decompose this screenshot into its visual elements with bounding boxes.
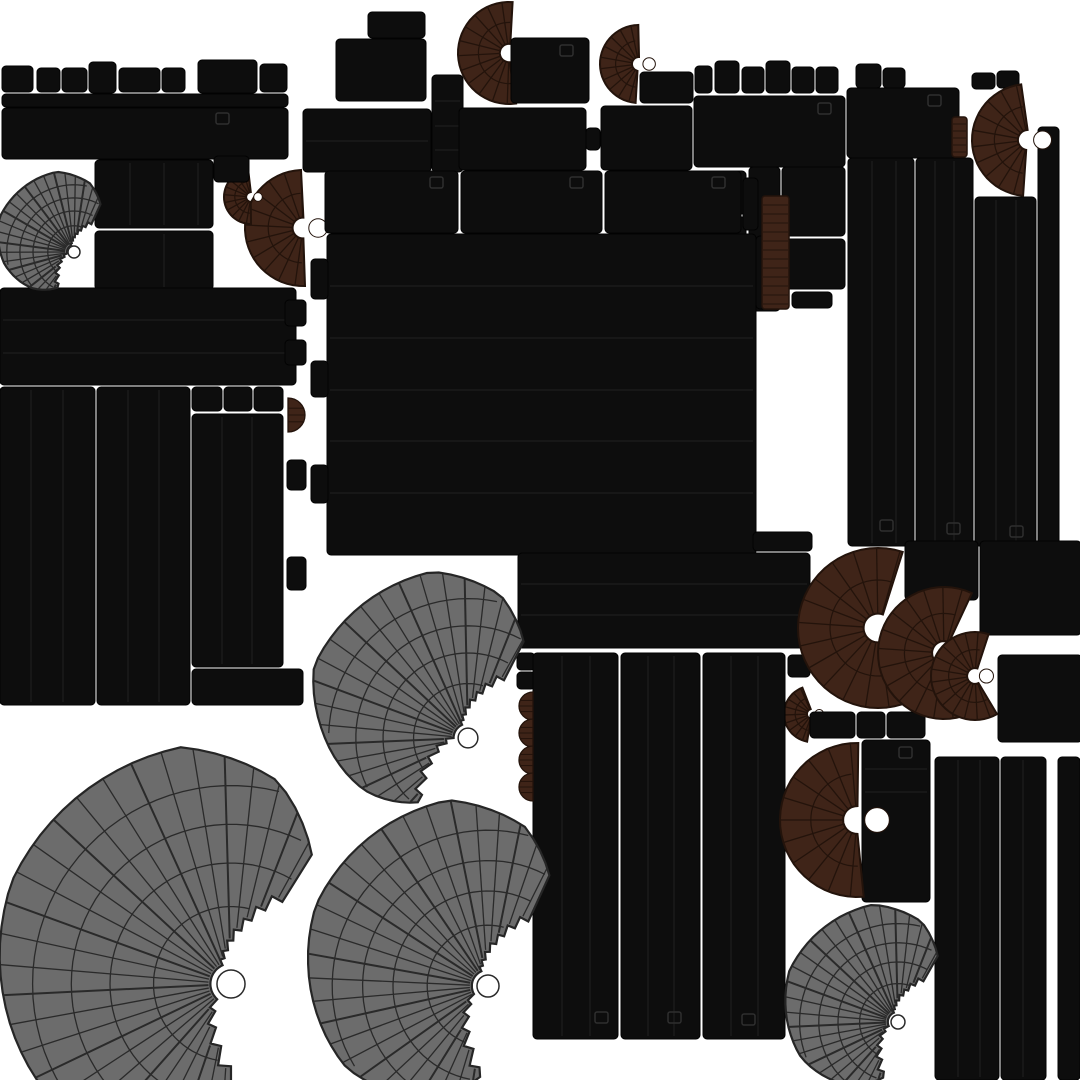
fan-notch-hole	[68, 246, 80, 258]
plank-island	[621, 653, 700, 1039]
plank-island	[518, 553, 810, 648]
plank-island	[857, 712, 885, 738]
plank-island	[260, 64, 287, 92]
plank-island	[916, 158, 973, 546]
plank-island	[192, 387, 222, 411]
plank-island	[2, 108, 288, 159]
plank-island	[95, 231, 213, 290]
plank-island	[703, 653, 785, 1039]
fan-notch-hole	[458, 728, 478, 748]
plank-island	[792, 67, 814, 93]
plank-island	[856, 64, 881, 88]
plank-island	[285, 300, 306, 326]
plank-island	[998, 655, 1080, 742]
plank-island	[601, 106, 692, 170]
atlas-canvas	[0, 0, 1080, 1080]
plank-island	[753, 532, 812, 551]
plank-island	[461, 171, 602, 233]
plank-island	[1058, 757, 1080, 1080]
plank-island	[432, 75, 463, 172]
plank-island	[972, 73, 995, 89]
plank-island	[847, 88, 959, 158]
plank-island	[336, 39, 426, 101]
plank-island	[287, 460, 306, 490]
plank-island	[198, 60, 257, 93]
plank-island	[640, 72, 693, 103]
plank-island	[285, 340, 306, 365]
plank-island	[62, 68, 87, 92]
plank-island	[119, 68, 160, 92]
plank-island	[224, 387, 252, 411]
plank-island	[511, 38, 589, 103]
plank-island	[327, 234, 756, 555]
plank-island	[517, 672, 535, 689]
plank-island	[192, 669, 303, 705]
fan-notch-hole	[254, 193, 263, 202]
fan-notch-hole	[891, 1015, 905, 1029]
plank-island	[517, 653, 535, 670]
plank-island	[935, 757, 999, 1080]
plank-island	[2, 94, 288, 107]
ladder-strip-island	[762, 196, 789, 309]
fan-notch-hole	[1034, 131, 1052, 149]
fan-spoke	[943, 588, 944, 640]
plank-island	[848, 158, 914, 546]
plank-island	[311, 259, 328, 299]
plank-island	[810, 712, 855, 738]
plank-island	[883, 68, 905, 88]
fan-notch-hole	[643, 58, 655, 70]
fan-notch-hole	[217, 970, 245, 998]
plank-island	[586, 128, 600, 150]
plank-island	[0, 288, 296, 385]
plank-island	[192, 414, 283, 667]
plank-island	[162, 68, 185, 92]
plank-island	[214, 156, 249, 182]
plank-island	[743, 178, 758, 230]
ladder-strip-island	[952, 117, 967, 157]
plank-island	[782, 239, 845, 289]
plank-island	[715, 61, 739, 93]
plank-island	[325, 171, 458, 233]
plank-island	[887, 712, 925, 738]
plank-island	[311, 361, 328, 397]
plank-island	[975, 197, 1036, 546]
plank-island	[89, 62, 116, 93]
fan-notch-hole	[865, 808, 890, 833]
fan-notch-hole	[979, 669, 993, 683]
plank-island	[782, 167, 845, 236]
fan-notch-hole	[477, 975, 499, 997]
plank-island	[533, 653, 618, 1039]
plank-island	[97, 387, 190, 705]
plank-island	[742, 67, 764, 93]
plank-island	[792, 292, 832, 308]
plank-island	[287, 557, 306, 590]
plank-island	[766, 61, 790, 93]
plank-island	[0, 387, 95, 705]
plank-island	[311, 465, 328, 503]
plank-island	[2, 66, 33, 92]
plank-island	[95, 160, 213, 228]
plank-island	[368, 12, 425, 38]
plank-island	[254, 387, 283, 411]
plank-island	[695, 66, 712, 93]
plank-island	[816, 67, 838, 93]
plank-island	[1038, 127, 1059, 552]
plank-island	[980, 541, 1080, 635]
uv-texture-atlas	[0, 0, 1080, 1080]
plank-island	[694, 96, 845, 167]
plank-island	[605, 171, 741, 233]
plank-island	[37, 68, 60, 92]
plank-island	[459, 108, 586, 170]
